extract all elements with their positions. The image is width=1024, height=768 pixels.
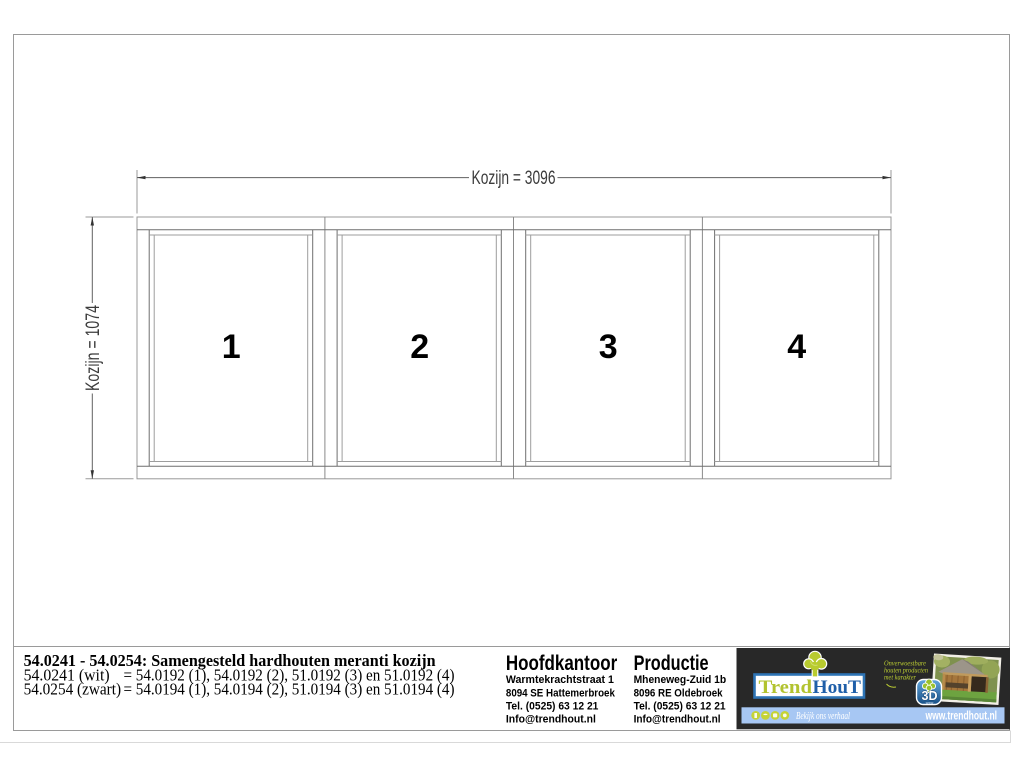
svg-text:Tel. (0525) 63 12 21: Tel. (0525) 63 12 21 xyxy=(634,701,726,713)
svg-text:4: 4 xyxy=(787,328,806,366)
svg-text:met karakter: met karakter xyxy=(884,674,916,682)
svg-text:8096 RE Oldebroek: 8096 RE Oldebroek xyxy=(634,687,724,699)
svg-text:Info@trendhout.nl: Info@trendhout.nl xyxy=(506,713,596,725)
svg-text:1: 1 xyxy=(222,328,241,366)
svg-text:www.trendhout.nl: www.trendhout.nl xyxy=(925,711,997,723)
svg-text:Mheneweg-Zuid 1b: Mheneweg-Zuid 1b xyxy=(634,674,727,686)
svg-text:= 54.0194 (1), 54.0194 (2), 51: = 54.0194 (1), 54.0194 (2), 51.0194 (3) … xyxy=(124,679,455,698)
svg-text:Bekijk ons verhaal: Bekijk ons verhaal xyxy=(796,711,850,722)
svg-text:Tel. (0525) 63 12 21: Tel. (0525) 63 12 21 xyxy=(506,701,599,713)
svg-text:Productie: Productie xyxy=(634,652,709,675)
svg-text:2: 2 xyxy=(410,328,429,366)
svg-text:Kozijn = 3096: Kozijn = 3096 xyxy=(472,168,556,189)
svg-text:Trend: Trend xyxy=(759,677,813,698)
svg-text:HouT: HouT xyxy=(813,677,862,698)
svg-text:3: 3 xyxy=(599,328,618,366)
svg-text:www: www xyxy=(926,701,934,705)
svg-text:Info@trendhout.nl: Info@trendhout.nl xyxy=(634,713,721,725)
svg-text:8094 SE Hattemerbroek: 8094 SE Hattemerbroek xyxy=(506,687,616,699)
svg-text:54.0254 (zwart): 54.0254 (zwart) xyxy=(24,679,122,698)
svg-text:Kozijn = 1074: Kozijn = 1074 xyxy=(83,305,104,391)
svg-text:Hoofdkantoor: Hoofdkantoor xyxy=(506,652,617,675)
svg-text:Warmtekrachtstraat 1: Warmtekrachtstraat 1 xyxy=(506,674,614,686)
